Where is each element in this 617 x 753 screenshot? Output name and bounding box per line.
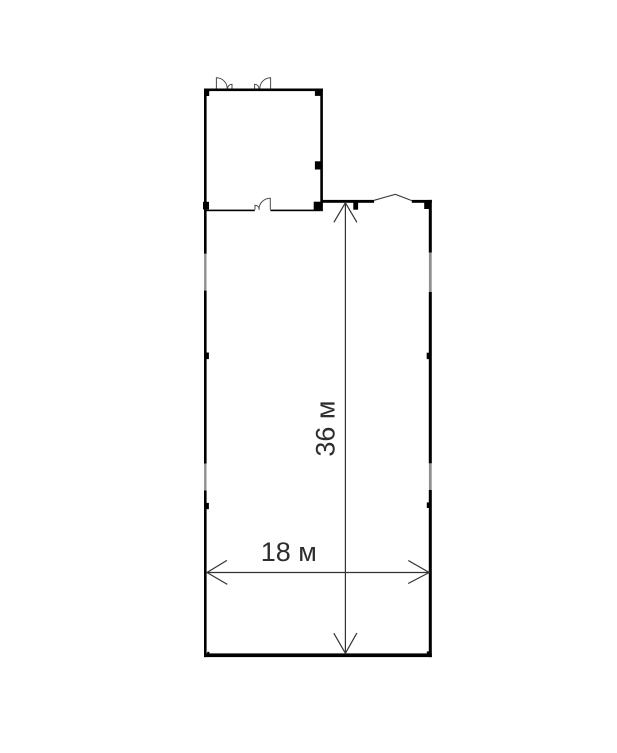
svg-text:18 м: 18 м bbox=[261, 537, 317, 567]
svg-text:36 м: 36 м bbox=[311, 401, 341, 457]
